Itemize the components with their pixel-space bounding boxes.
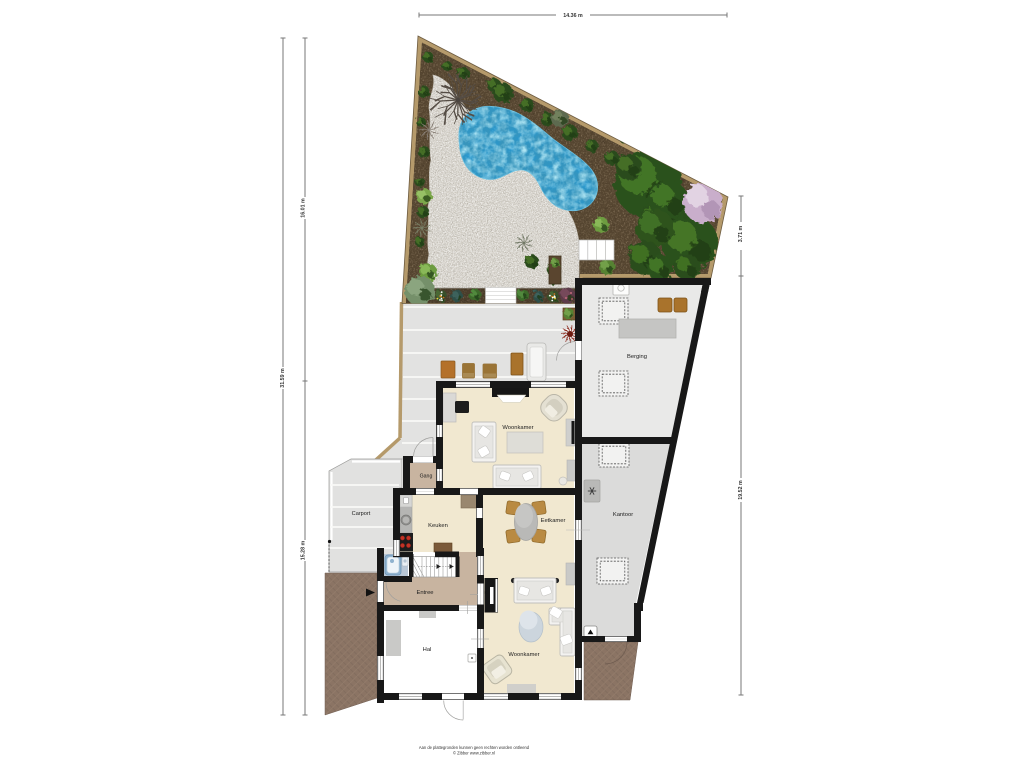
svg-text:Keuken: Keuken: [428, 523, 448, 529]
svg-text:© Zibber www.zibber.nl: © Zibber www.zibber.nl: [453, 751, 495, 756]
svg-text:14.36 m: 14.36 m: [563, 13, 583, 19]
svg-text:Woonkamer: Woonkamer: [502, 425, 533, 431]
svg-text:16.01 m: 16.01 m: [301, 198, 307, 218]
svg-text:15.28 m: 15.28 m: [301, 540, 307, 560]
svg-text:Woonkamer: Woonkamer: [508, 652, 539, 658]
svg-text:Hal: Hal: [423, 647, 432, 653]
svg-text:31.59 m: 31.59 m: [280, 368, 286, 388]
svg-text:Entree: Entree: [416, 590, 433, 596]
svg-text:19.52 m: 19.52 m: [738, 480, 744, 500]
svg-text:Berging: Berging: [627, 354, 647, 360]
svg-text:K: K: [484, 590, 487, 595]
svg-text:Gang: Gang: [420, 474, 433, 480]
svg-text:Kantoor: Kantoor: [613, 512, 633, 518]
svg-text:Eetkamer: Eetkamer: [541, 518, 566, 524]
svg-text:3.71 m: 3.71 m: [738, 225, 744, 242]
svg-text:Carport: Carport: [352, 511, 371, 517]
svg-text:Aan de plattegronden kunnen ge: Aan de plattegronden kunnen geen rechten…: [419, 745, 530, 750]
